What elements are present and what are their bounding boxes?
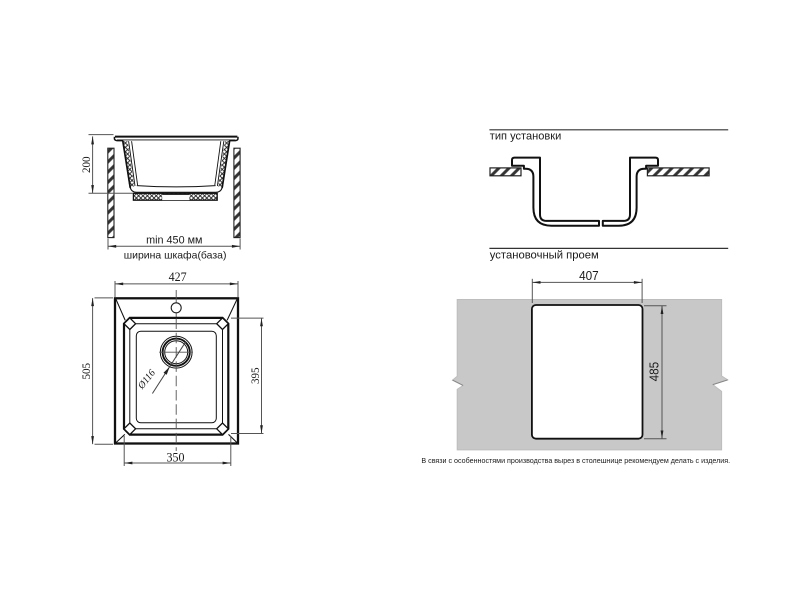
svg-text:395: 395 <box>250 367 262 384</box>
svg-text:407: 407 <box>579 269 599 283</box>
svg-text:В связи с особенностями произв: В связи с особенностями производства выр… <box>421 456 730 465</box>
svg-text:min 450 мм: min 450 мм <box>146 235 202 247</box>
svg-text:тип установки: тип установки <box>490 131 562 143</box>
svg-text:485: 485 <box>647 362 661 382</box>
svg-text:Ø116: Ø116 <box>135 368 158 392</box>
svg-text:200: 200 <box>81 156 93 173</box>
svg-text:ширина шкафа(база): ширина шкафа(база) <box>124 250 227 262</box>
svg-text:350: 350 <box>167 451 185 465</box>
svg-text:установочный проем: установочный проем <box>490 249 599 261</box>
svg-text:505: 505 <box>81 363 93 380</box>
svg-text:427: 427 <box>169 270 187 284</box>
